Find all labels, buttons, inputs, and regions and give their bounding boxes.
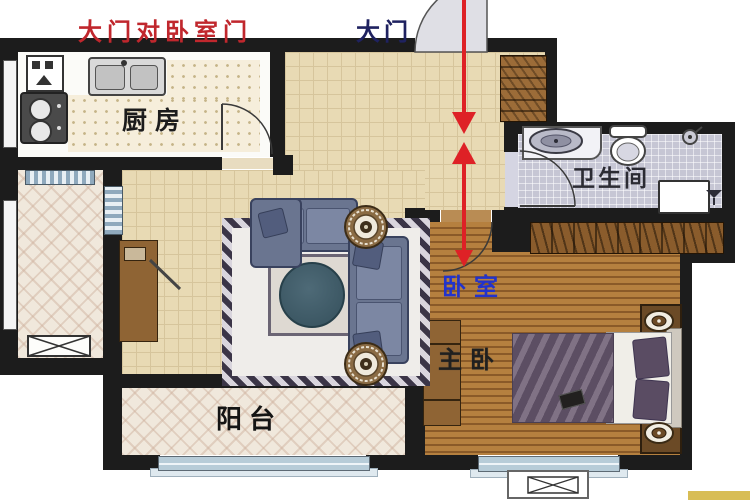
balcony-label: 阳台 xyxy=(216,399,282,436)
corridor-floor xyxy=(415,122,505,210)
second-room-top-window xyxy=(25,170,95,185)
stove xyxy=(20,92,68,144)
tv-cabinet xyxy=(119,240,158,342)
stove-knob-2 xyxy=(57,126,61,130)
left-wall-window-upper xyxy=(3,60,17,148)
left-wall-window-lower xyxy=(3,200,17,330)
floor-plan: 大门对卧室门 大门 厨房 卫生间 卧室 主卧 阳台 xyxy=(0,0,750,500)
wall-second-room-bottom xyxy=(0,358,122,375)
wall-bath-left-b xyxy=(504,207,518,222)
bedroom-window xyxy=(478,456,620,472)
sofa-right xyxy=(348,236,409,364)
kitchen-counter-area-upper xyxy=(167,60,260,100)
sink-basin-right xyxy=(130,65,158,90)
second-room-floor xyxy=(18,170,103,358)
wall-bedroom-bottom-a xyxy=(425,455,478,470)
sofa-top-cushion-b xyxy=(306,208,350,244)
bathroom-sink-counter xyxy=(522,126,602,160)
kitchen-label: 厨房 xyxy=(122,101,188,137)
faucet-icon xyxy=(121,60,127,66)
wall-kitchen-corner xyxy=(273,155,293,175)
sofa-throw-pillow xyxy=(257,207,289,239)
wardrobe xyxy=(530,222,724,254)
washing-machine xyxy=(658,180,710,214)
bed-pillow-top xyxy=(632,336,670,379)
burner-top xyxy=(29,98,52,121)
stove-knob xyxy=(57,104,61,108)
bathroom-label: 卫生间 xyxy=(572,159,650,193)
wall-block-bath-corner xyxy=(492,222,530,252)
shoe-cabinet xyxy=(500,55,547,122)
sofa-right-pillow-a xyxy=(352,238,384,270)
fridge-detail xyxy=(32,61,40,69)
sofa-right-pillow-b xyxy=(352,330,384,362)
wall-bedroom-bottom-b xyxy=(618,455,692,470)
balcony-window xyxy=(158,456,370,471)
sofa-corner xyxy=(250,198,302,268)
bedroom-label: 卧室 xyxy=(442,267,506,302)
main-door-label: 大门 xyxy=(356,12,412,47)
main-door-arc xyxy=(415,0,487,52)
bed-pillow-bottom xyxy=(632,379,669,422)
fridge xyxy=(26,55,64,92)
coffee-table-circle xyxy=(279,262,345,328)
kitchen-sink xyxy=(88,57,166,96)
fridge-detail-2 xyxy=(45,61,53,69)
fridge-vent-icon xyxy=(36,75,52,85)
master-bedroom-label: 主卧 xyxy=(438,340,502,375)
closet-divider-2 xyxy=(424,399,460,401)
warning-label: 大门对卧室门 xyxy=(78,12,252,47)
sink-basin-left xyxy=(95,65,125,90)
dining-floor xyxy=(285,122,425,170)
burner-bottom xyxy=(29,120,52,143)
wall-top-right xyxy=(487,38,557,52)
second-room-side-window xyxy=(104,186,123,235)
wall-kitchen-right xyxy=(270,52,285,157)
artifact-strip xyxy=(688,491,750,500)
tv-cabinet-drawer xyxy=(124,247,146,261)
